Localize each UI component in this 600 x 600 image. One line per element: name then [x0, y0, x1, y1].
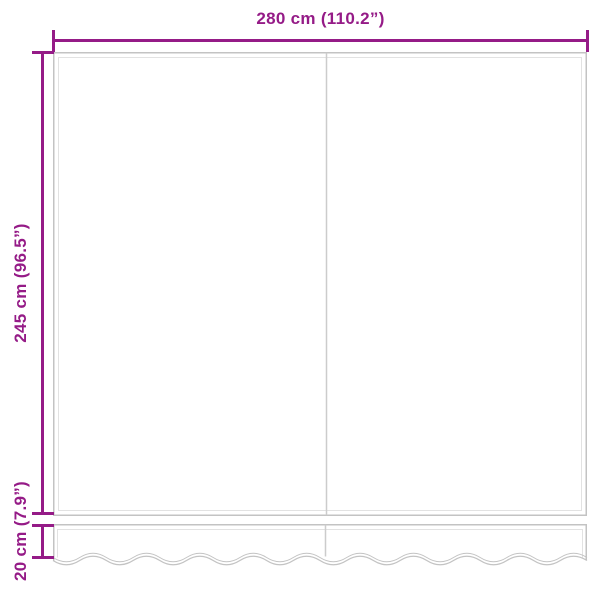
width-dimension-line: [52, 39, 589, 42]
valance-dimension-line: [41, 524, 44, 558]
valance-outline: [54, 525, 587, 561]
height-dimension-tick-bottom: [32, 512, 54, 515]
width-dimension-label: 280 cm (110.2”): [52, 9, 589, 29]
valance-dimension-tick-top: [32, 524, 54, 527]
height-dimension-tick-top: [32, 51, 54, 54]
height-dimension-line: [41, 52, 44, 514]
width-dimension-tick-left: [52, 30, 55, 52]
fabric-panel-outline: [54, 53, 587, 516]
valance-dimension-label: 20 cm (7.9”): [11, 481, 31, 581]
awning-fabric-dimension-diagram: 280 cm (110.2”) 245 cm (96.5”) 20 cm (7.…: [0, 0, 600, 600]
height-dimension-label: 245 cm (96.5”): [11, 223, 31, 343]
width-dimension-tick-right: [586, 30, 589, 52]
fabric-drawing: [0, 0, 600, 600]
valance-dimension-tick-bottom: [32, 556, 54, 559]
